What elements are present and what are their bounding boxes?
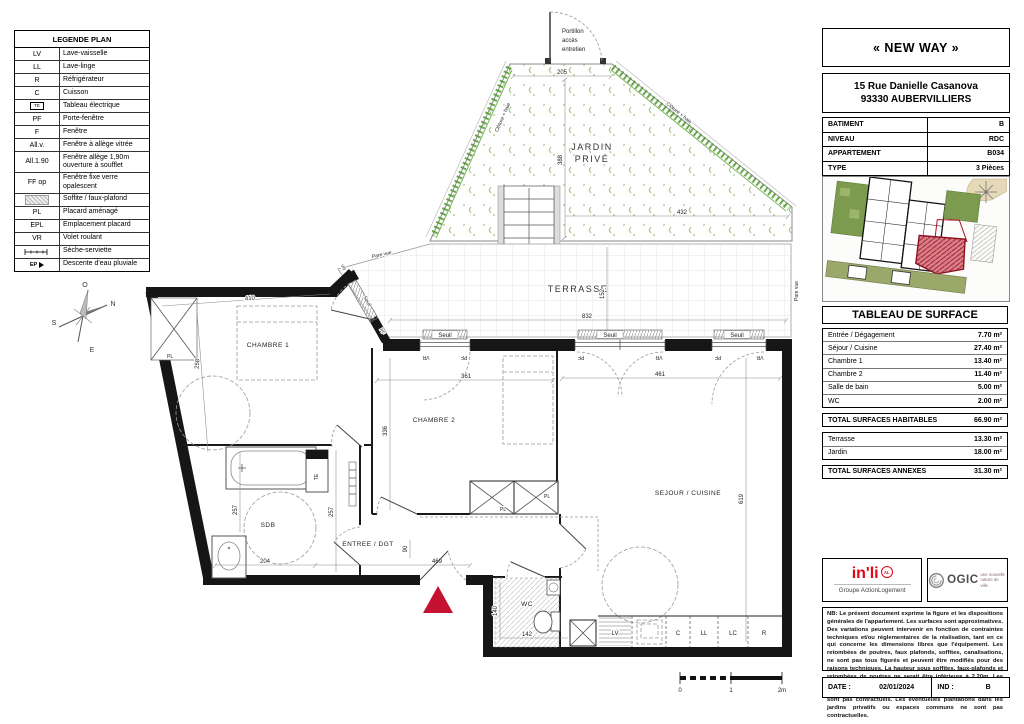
legend-label: Sèche-serviette xyxy=(60,246,149,258)
info-value: 3 Pièces xyxy=(927,162,1009,176)
legend-symbol: EPL xyxy=(15,220,60,232)
surface-total-habitable: TOTAL SURFACES HABITABLES66.90 m² xyxy=(822,413,1008,427)
te-label: TE xyxy=(314,473,320,480)
dim-sejour-width: 461 xyxy=(655,372,666,378)
legend-label: Réfrigérateur xyxy=(60,74,149,86)
address-box: 15 Rue Danielle Casanova 93330 AUBERVILL… xyxy=(822,73,1010,113)
scale-bar: 0 1 2m xyxy=(678,672,786,694)
toilet xyxy=(534,611,560,633)
date-value: 02/01/2024 xyxy=(862,684,931,691)
compass-rose: O N S E xyxy=(52,282,116,354)
legend-symbol: VR xyxy=(15,233,60,245)
sejour-label: SEJOUR / CUISINE xyxy=(655,490,721,497)
pf-label: PF xyxy=(461,354,467,360)
legal-notice: NB: Le présent document exprime la figur… xyxy=(822,607,1008,671)
electrical-panel-icon: TE xyxy=(30,102,44,110)
legend-row: PLPlacard aménagé xyxy=(15,207,149,220)
vr-label: VR xyxy=(655,354,662,360)
legend-label: Cuisson xyxy=(60,87,149,99)
appliance-lc: LC xyxy=(729,631,737,637)
info-value: RDC xyxy=(927,133,1009,147)
surface-rows: Entrée / Dégagement7.70 m² Séjour / Cuis… xyxy=(822,328,1008,408)
wc-label: WC xyxy=(521,601,533,608)
legend-row: Soffite / faux-plafond xyxy=(15,194,149,207)
ep-label: EP xyxy=(30,262,37,268)
terrace-area: TERRASSE Pare vue Pare vue 832 152 xyxy=(338,244,800,337)
surface-row: Jardin18.00 m² xyxy=(823,447,1007,459)
legend-label: Fenêtre allège 1,90m ouverture à souffle… xyxy=(60,152,149,172)
legend-panel: LEGENDE PLAN LVLave-vaisselle LLLave-lin… xyxy=(14,30,150,272)
legend-symbol: C xyxy=(15,87,60,99)
dim-sdb-left: 257 xyxy=(233,504,239,515)
ind-label: IND : xyxy=(932,684,967,691)
legend-label: Soffite / faux-plafond xyxy=(60,194,149,206)
info-row-appartement: APPARTEMENTB034 xyxy=(823,147,1009,162)
legend-label: Descente d'eau pluviale xyxy=(60,259,149,271)
chambre2-label: CHAMBRE 2 xyxy=(413,417,455,424)
towel-radiator-icon xyxy=(23,247,51,257)
surface-annex-rows: Terrasse13.30 m² Jardin18.00 m² xyxy=(822,432,1008,459)
portillon-label-1: Portillon xyxy=(562,29,584,35)
legend-row: All.v.Fenêtre à allège vitrée xyxy=(15,139,149,152)
dim-sdb-right: 257 xyxy=(329,506,335,517)
turning-circle xyxy=(244,492,316,564)
legend-symbol-te: TE xyxy=(15,100,60,112)
dim-ch2-height: 336 xyxy=(383,425,389,436)
scale-0: 0 xyxy=(678,688,682,694)
info-row-batiment: BATIMENTB xyxy=(823,118,1009,133)
pl-label: PL xyxy=(167,354,173,360)
scale-2m: 2m xyxy=(778,688,786,694)
ogic-tagline: une nouvelle nature de ville xyxy=(981,572,1007,588)
washbasin xyxy=(212,536,246,578)
address-line2: 93330 AUBERVILLIERS xyxy=(861,93,972,107)
legend-symbol: PF xyxy=(15,113,60,125)
surface-row: Entrée / Dégagement7.70 m² xyxy=(823,329,1007,342)
legend-row: RRéfrigérateur xyxy=(15,74,149,87)
compass-east: E xyxy=(90,347,95,354)
dim-sdb-width: 204 xyxy=(260,559,271,565)
kitchen-counter: LV C LL LC R xyxy=(598,616,782,647)
surface-row: Chambre 211.40 m² xyxy=(823,369,1007,382)
dim-sejour-height: 619 xyxy=(739,493,745,504)
unit-info-table: BATIMENTB NIVEAURDC APPARTEMENTB034 TYPE… xyxy=(822,117,1010,176)
pl-label: PL xyxy=(500,507,506,513)
ogic-mark-icon xyxy=(928,572,945,589)
seuil-label: Seuil xyxy=(438,333,451,339)
room-sdb: TE SDB 257 257 xyxy=(212,447,356,578)
inli-wordmark: in'li xyxy=(852,566,879,582)
site-plan-thumbnail xyxy=(822,176,1010,302)
dim-terrace-width: 832 xyxy=(582,314,593,320)
legend-row: VRVolet roulant xyxy=(15,233,149,246)
dim-ch1-width: 410 xyxy=(245,296,256,303)
vr-label: VR xyxy=(756,354,763,360)
project-title: « NEW WAY » xyxy=(822,28,1010,67)
chambre1-label: CHAMBRE 1 xyxy=(247,342,289,349)
floor-plan-sheet: { "legend": { "title": "LEGENDE PLAN", "… xyxy=(0,0,1024,724)
garden-label-line1: JARDIN xyxy=(571,142,613,152)
legend-symbol: F xyxy=(15,126,60,138)
legend-row: LVLave-vaisselle xyxy=(15,48,149,61)
logos-row: in'li AL Groupe ActionLogement OGIC une … xyxy=(822,558,1008,602)
legend-row: LLLave-linge xyxy=(15,61,149,74)
pare-vue-label-right: Pare vue xyxy=(794,281,800,301)
legend-label: Fenêtre fixe verre opalescent xyxy=(60,173,149,193)
legend-label: Lave-vaisselle xyxy=(60,48,149,60)
info-row-niveau: NIVEAURDC xyxy=(823,133,1009,148)
legend-symbol: PL xyxy=(15,207,60,219)
address-line1: 15 Rue Danielle Casanova xyxy=(854,80,978,94)
legend-label: Tableau électrique xyxy=(60,100,149,112)
appliance-c: C xyxy=(676,631,681,637)
surface-row: Salle de bain5.00 m² xyxy=(823,382,1007,395)
appliance-lv: LV xyxy=(612,631,619,637)
towel-radiator xyxy=(349,462,356,506)
ogic-wordmark: OGIC xyxy=(947,574,978,586)
dim-garden-top: 205 xyxy=(557,70,568,76)
legend-row: PFPorte-fenêtre xyxy=(15,113,149,126)
compass-north: N xyxy=(110,301,115,308)
surface-row: WC2.00 m² xyxy=(823,395,1007,407)
appliance-r: R xyxy=(762,631,767,637)
room-chambre2: CHAMBRE 2 361 336 PL PL xyxy=(375,356,558,514)
vr-label: VR xyxy=(422,354,429,360)
closets: PL PL xyxy=(470,481,558,514)
legend-row: FF opFenêtre fixe verre opalescent xyxy=(15,173,149,194)
dim-ch2-width: 361 xyxy=(461,374,472,380)
garden-label-line2: PRIVÉ xyxy=(575,154,610,164)
pf-label: PF xyxy=(715,354,721,360)
window-sejour-double: Seuil PF VR xyxy=(575,330,665,397)
legend-symbol-ep: EP xyxy=(15,259,60,271)
legend-symbol-soffite xyxy=(15,194,60,206)
dim-wc-height: 140 xyxy=(493,605,499,616)
legend-label: Lave-linge xyxy=(60,61,149,73)
info-label: NIVEAU xyxy=(823,136,927,143)
legend-symbol: R xyxy=(15,74,60,86)
entree-label: ENTREE / DGT xyxy=(342,541,394,548)
pf-label: PF xyxy=(578,354,584,360)
dim-ch1-height: 258 xyxy=(195,358,202,369)
dim-terrace-height: 152 xyxy=(600,288,606,299)
soffite-hatch-icon xyxy=(25,195,49,205)
legend-symbol: LL xyxy=(15,61,60,73)
legend-label: Fenêtre à allège vitrée xyxy=(60,139,149,151)
legend-symbol: LV xyxy=(15,48,60,60)
legend-row: EPDescente d'eau pluviale xyxy=(15,259,149,271)
dim-door-width: 90 xyxy=(403,545,409,552)
electrical-panel: TE xyxy=(306,450,328,492)
legend-label: Fenêtre xyxy=(60,126,149,138)
surface-table: TABLEAU DE SURFACE Entrée / Dégagement7.… xyxy=(822,306,1008,484)
compass-south: S xyxy=(52,320,57,327)
legend-label: Placard aménagé xyxy=(60,207,149,219)
surface-row: Terrasse13.30 m² xyxy=(823,433,1007,446)
legend-symbol: All.1.90 xyxy=(15,152,60,172)
date-footer: DATE : 02/01/2024 IND : B xyxy=(822,677,1010,698)
garden-area: Clôture + haie Clôture + haie JARDIN PRI… xyxy=(426,12,796,241)
legend-row: Sèche-serviette xyxy=(15,246,149,259)
legend-title: LEGENDE PLAN xyxy=(15,31,149,48)
info-value: B xyxy=(927,118,1009,132)
entrance-arrow xyxy=(423,586,453,613)
legend-symbol: FF op xyxy=(15,173,60,193)
ogic-logo: OGIC une nouvelle nature de ville xyxy=(927,558,1008,602)
surface-total-annex: TOTAL SURFACES ANNEXES31.30 m² xyxy=(822,465,1008,479)
info-label: APPARTEMENT xyxy=(823,150,927,157)
ind-value: B xyxy=(967,684,1009,691)
inli-subtitle: Groupe ActionLogement xyxy=(839,587,906,594)
legend-row: All.1.90Fenêtre allège 1,90m ouverture à… xyxy=(15,152,149,173)
portillon-label-2: accès xyxy=(562,38,578,44)
legend-row: CCuisson xyxy=(15,87,149,100)
seuil-label: Seuil xyxy=(603,333,616,339)
window-sejour-right: Seuil PF VR xyxy=(712,330,766,404)
inli-al-badge-icon: AL xyxy=(881,566,893,578)
dim-garden-width: 432 xyxy=(677,210,688,216)
surface-table-title: TABLEAU DE SURFACE xyxy=(822,306,1008,324)
pl-label: PL xyxy=(544,494,550,500)
compass-west: O xyxy=(82,282,88,289)
dim-wc-width: 142 xyxy=(522,632,533,638)
info-label: BATIMENT xyxy=(823,121,927,128)
legend-label: Porte-fenêtre xyxy=(60,113,149,125)
window-chambre2: Seuil VR PF xyxy=(420,330,470,400)
legend-row: TETableau électrique xyxy=(15,100,149,113)
rainwater-icon xyxy=(39,262,44,268)
seuil-label: Seuil xyxy=(730,333,743,339)
legend-row: FFenêtre xyxy=(15,126,149,139)
legend-symbol: All.v. xyxy=(15,139,60,151)
sdb-label: SDB xyxy=(261,522,276,529)
scale-1: 1 xyxy=(729,688,733,694)
legend-symbol-radiator xyxy=(15,246,60,258)
info-label: TYPE xyxy=(823,165,927,172)
inli-logo: in'li AL Groupe ActionLogement xyxy=(822,558,922,602)
legend-row: EPLEmplacement placard xyxy=(15,220,149,233)
divider xyxy=(834,584,911,585)
surface-row: Séjour / Cuisine27.40 m² xyxy=(823,342,1007,355)
legend-label: Volet roulant xyxy=(60,233,149,245)
info-row-type: TYPE3 Pièces xyxy=(823,162,1009,176)
round-table xyxy=(602,547,678,623)
site-plan-drawing xyxy=(823,177,1007,299)
surface-row: Chambre 113.40 m² xyxy=(823,355,1007,368)
room-entree: ENTREE / DGT 204 469 90 xyxy=(213,540,472,568)
legend-label: Emplacement placard xyxy=(60,220,149,232)
appliance-ll: LL xyxy=(701,631,708,637)
portillon-label-3: entretien xyxy=(562,47,585,53)
dim-garden-height: 388 xyxy=(558,154,564,165)
wc-basin xyxy=(547,580,560,595)
info-value: B034 xyxy=(927,147,1009,161)
date-label: DATE : xyxy=(823,684,862,691)
room-wc: WC 140 142 xyxy=(493,578,568,647)
